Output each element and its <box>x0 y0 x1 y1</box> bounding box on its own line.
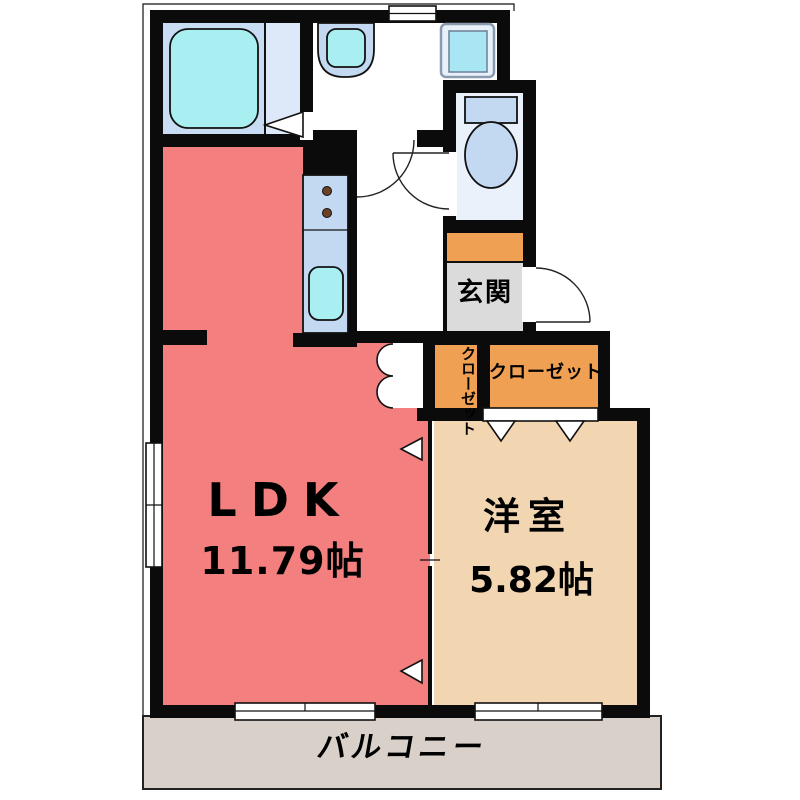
western-room-label: 洋室 <box>438 496 618 539</box>
entrance-step-line <box>447 261 523 263</box>
western-room-floor <box>434 408 637 705</box>
hallway-floor <box>357 134 443 331</box>
western-room-area-label: 5.82帖 <box>434 560 629 601</box>
ldk-room-label: LDK <box>175 474 385 527</box>
balcony-label: バルコニー <box>140 731 664 766</box>
entrance-step <box>447 233 523 262</box>
bathtub-icon <box>170 29 258 128</box>
window-top <box>389 6 436 21</box>
entrance-door-opening <box>522 267 537 322</box>
bathroom-divider-line <box>264 23 266 134</box>
window-bottom-ldk <box>235 703 375 720</box>
floor-plan-drawing <box>0 0 800 800</box>
toilet-icon <box>465 97 517 188</box>
vanity-sink-icon <box>318 23 374 77</box>
ldk-area-label: 11.79帖 <box>165 540 400 584</box>
washing-machine-pan-icon <box>441 24 494 77</box>
kitchen-counter-icon <box>303 175 348 333</box>
window-left <box>146 443 162 567</box>
floor-plan: LDK 11.79帖 洋室 5.82帖 玄関 クローゼット クローゼット バルコ… <box>0 0 800 800</box>
gas-stove-icon <box>323 187 332 196</box>
toilet-door-opening <box>442 152 457 216</box>
kitchen-sink-icon <box>309 267 343 320</box>
entrance-label: 玄関 <box>446 279 524 309</box>
closet-small-label: クローゼット <box>435 346 478 410</box>
closet-label: クローゼット <box>489 363 599 384</box>
window-bottom-western <box>475 703 602 720</box>
entrance-door-arc <box>536 268 590 322</box>
